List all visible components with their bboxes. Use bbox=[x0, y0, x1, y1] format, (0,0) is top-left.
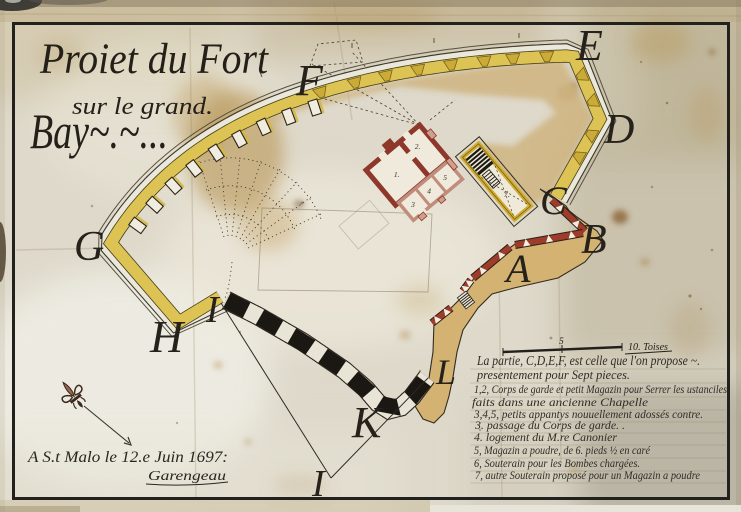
svg-text:5: 5 bbox=[559, 337, 564, 347]
svg-text:1,2, Corps de garde et petit M: 1,2, Corps de garde et petit Magazin pou… bbox=[474, 384, 727, 396]
svg-text:A: A bbox=[503, 246, 531, 291]
svg-text:E: E bbox=[575, 21, 603, 70]
svg-text:K: K bbox=[351, 398, 384, 447]
svg-text:I: I bbox=[205, 289, 221, 331]
svg-text:I: I bbox=[311, 463, 327, 505]
svg-text:3. passage du Corps de garde.: 3. passage du Corps de garde. . bbox=[474, 420, 625, 432]
svg-text:1.: 1. bbox=[394, 170, 400, 179]
svg-text:5, Magazin a poudre, de 6. pie: 5, Magazin a poudre, de 6. pieds ½ en ca… bbox=[474, 445, 651, 457]
svg-text:2.: 2. bbox=[415, 142, 421, 151]
svg-text:La partie, C,D,E,F, est celle: La partie, C,D,E,F, est celle que l'on p… bbox=[476, 354, 700, 369]
svg-text:presentement pour Sept pieces.: presentement pour Sept pieces. bbox=[476, 368, 630, 382]
svg-text:A S.t Malo le 12.e Juin 1697:: A S.t Malo le 12.e Juin 1697: bbox=[27, 449, 228, 466]
svg-text:G: G bbox=[74, 224, 104, 270]
svg-text:7, autre Souterain proposé po: 7, autre Souterain proposé pour un Maga… bbox=[475, 470, 700, 482]
svg-text:L: L bbox=[435, 352, 456, 392]
svg-text:D: D bbox=[603, 107, 634, 153]
svg-text:C: C bbox=[540, 178, 568, 223]
svg-text:H: H bbox=[149, 311, 186, 362]
svg-text:4: 4 bbox=[427, 187, 431, 196]
svg-text:Garengeau: Garengeau bbox=[148, 469, 226, 484]
svg-text:7.: 7. bbox=[504, 190, 510, 199]
svg-text:4. logement du M.re Canonier: 4. logement du M.re Canonier bbox=[474, 432, 618, 444]
svg-text:3: 3 bbox=[410, 200, 415, 209]
svg-text:Bay~.~...: Bay~.~... bbox=[30, 103, 168, 159]
svg-text:5: 5 bbox=[443, 173, 447, 182]
svg-text:Proiet du Fort: Proiet du Fort bbox=[39, 36, 269, 83]
svg-text:6, Souterain pour les Bombes c: 6, Souterain pour les Bombes chargées. bbox=[474, 458, 640, 470]
svg-text:faits dans une ancienne Chapel: faits dans une ancienne Chapelle bbox=[472, 397, 648, 409]
svg-text:F: F bbox=[295, 56, 324, 105]
svg-text:B: B bbox=[581, 217, 607, 263]
